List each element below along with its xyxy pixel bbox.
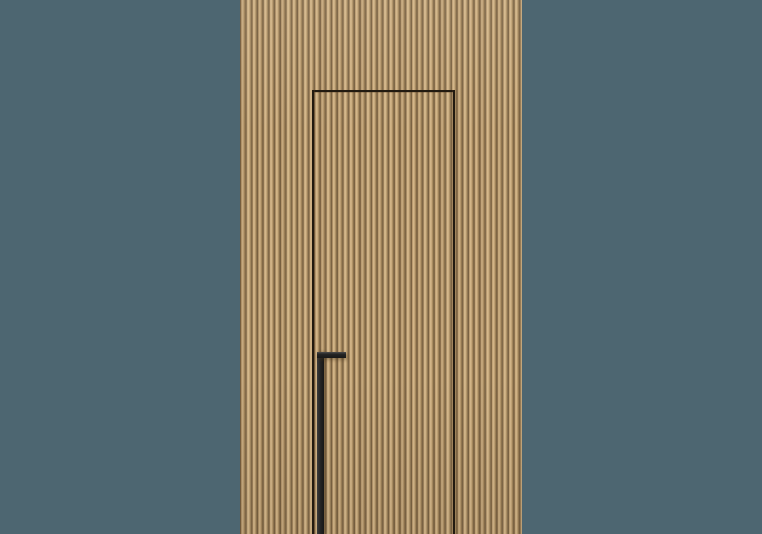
door-handle-top-bar — [317, 352, 346, 358]
scene — [0, 0, 762, 534]
door-gap-right — [453, 90, 455, 534]
door-handle-stem — [317, 352, 324, 534]
fluted-wood-panel — [240, 0, 522, 534]
door-gap-left — [312, 90, 314, 534]
door-gap-top — [312, 90, 455, 92]
